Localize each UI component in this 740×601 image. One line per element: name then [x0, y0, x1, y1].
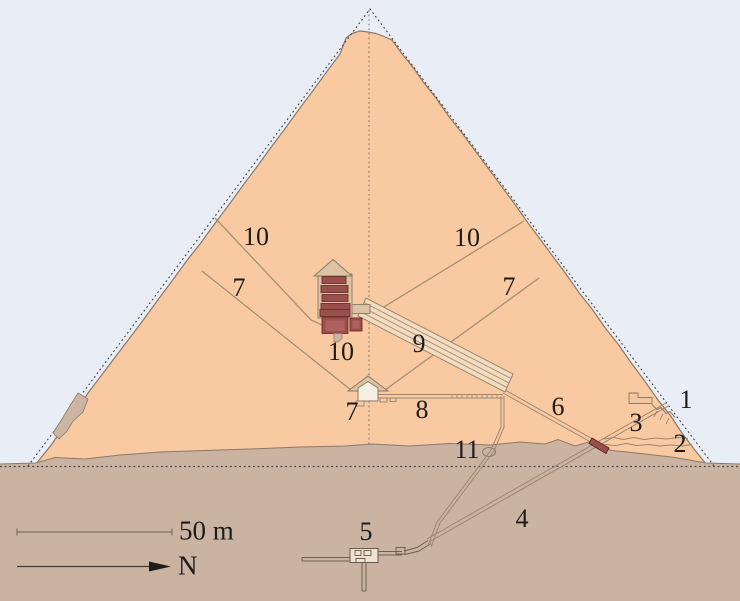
subterranean-chamber-shape	[350, 549, 378, 563]
label-subterranean-chamber: 5	[360, 519, 373, 545]
label-robbers-tunnel: 2	[674, 431, 687, 457]
pyramid-cross-section-diagram: 1 2 3 4 5 6 7 7 7 8 9 10 10 10 11 50 m N	[0, 0, 740, 601]
label-kings-south-shaft: 10	[454, 225, 480, 251]
label-kings-chamber: 10	[328, 339, 354, 365]
north-label: N	[178, 553, 198, 580]
label-queens-north-shaft: 7	[233, 275, 246, 301]
scale-label: 50 m	[179, 518, 234, 545]
label-kings-north-shaft: 10	[243, 224, 269, 250]
label-grand-gallery: 9	[413, 331, 426, 357]
diagram-canvas	[0, 0, 740, 601]
label-queens-chamber: 7	[346, 399, 359, 425]
label-descending-passage-upper: 3	[630, 410, 643, 436]
label-horizontal-passage: 8	[416, 397, 429, 423]
label-original-entrance: 1	[680, 387, 693, 413]
label-ascending-passage: 6	[552, 394, 565, 420]
label-queens-south-shaft: 7	[503, 274, 516, 300]
label-descending-passage-lower: 4	[516, 506, 529, 532]
label-well-shaft-grotto: 11	[454, 437, 479, 463]
